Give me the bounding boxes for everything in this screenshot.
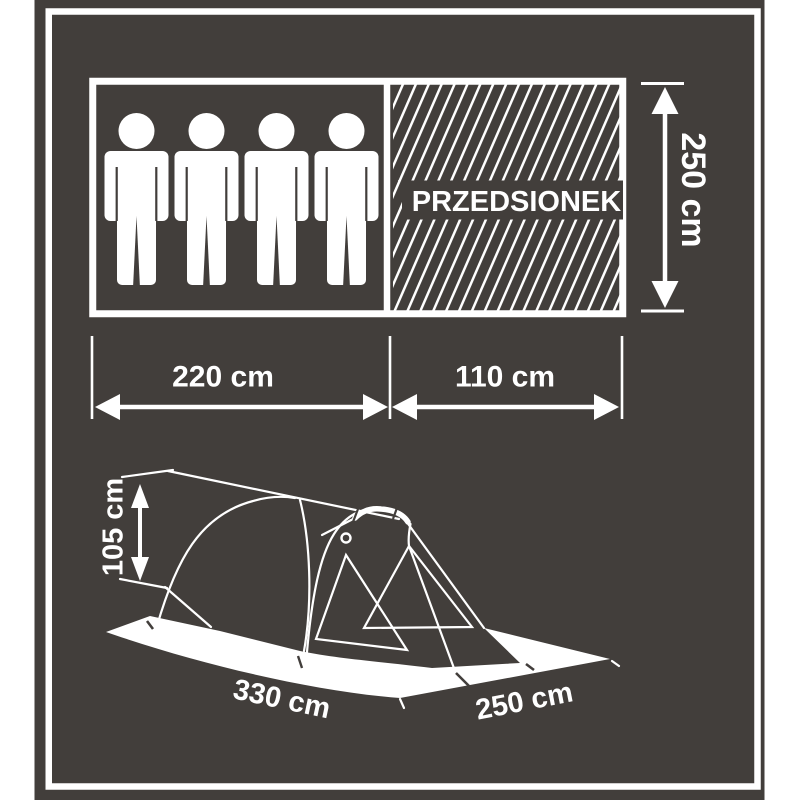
svg-text:110 cm: 110 cm — [455, 361, 555, 394]
svg-text:PRZEDSIONEK: PRZEDSIONEK — [412, 186, 622, 218]
svg-text:105 cm: 105 cm — [98, 478, 130, 576]
svg-text:220 cm: 220 cm — [172, 361, 274, 394]
svg-text:250 cm: 250 cm — [674, 132, 712, 247]
